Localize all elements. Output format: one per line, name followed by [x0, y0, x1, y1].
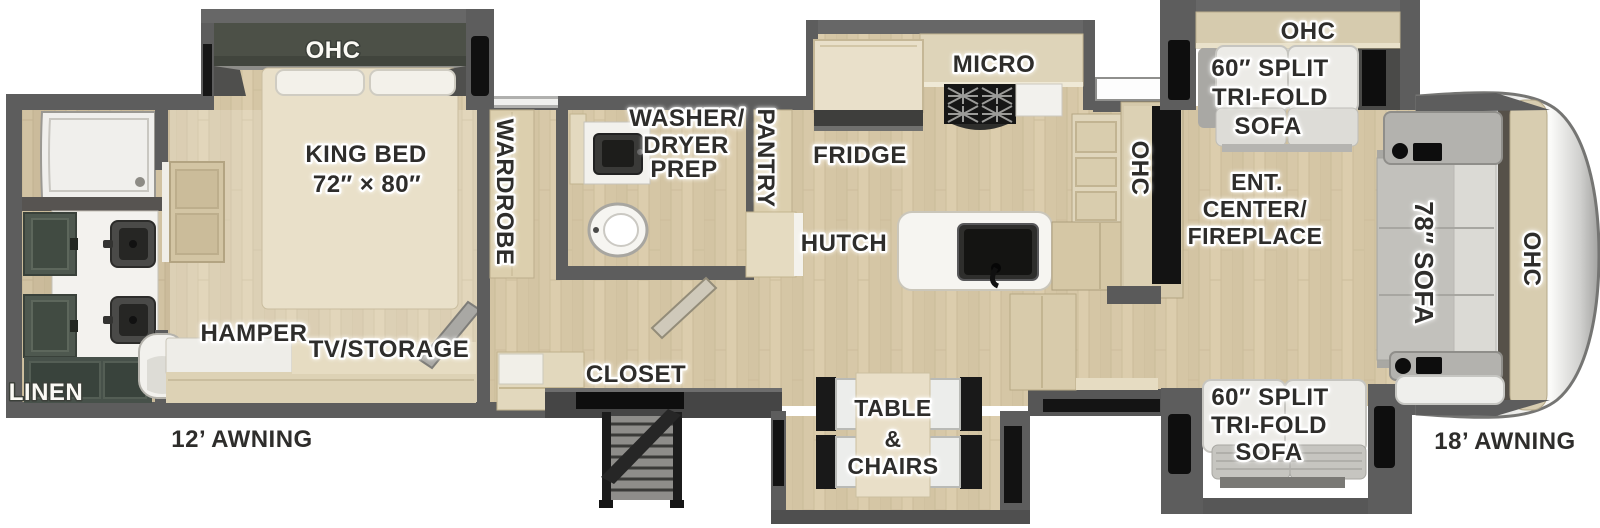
svg-text:TRI-FOLD: TRI-FOLD	[1212, 84, 1328, 111]
svg-text:TV/STORAGE: TV/STORAGE	[309, 336, 470, 363]
svg-text:HAMPER: HAMPER	[200, 320, 307, 347]
svg-text:SOFA: SOFA	[1235, 439, 1302, 466]
svg-text:WASHER/: WASHER/	[629, 105, 745, 132]
svg-text:12’ AWNING: 12’ AWNING	[171, 426, 312, 453]
svg-text:TRI-FOLD: TRI-FOLD	[1211, 412, 1327, 439]
svg-text:78″ SOFA: 78″ SOFA	[1409, 201, 1439, 324]
svg-text:ENT.: ENT.	[1231, 169, 1283, 195]
svg-text:TABLE: TABLE	[854, 395, 931, 421]
svg-text:FRIDGE: FRIDGE	[813, 142, 907, 169]
svg-text:PREP: PREP	[650, 156, 717, 183]
svg-text:18’ AWNING: 18’ AWNING	[1434, 428, 1575, 455]
svg-text:OHC: OHC	[1518, 232, 1545, 287]
svg-text:MICRO: MICRO	[953, 51, 1036, 78]
svg-text:CHAIRS: CHAIRS	[847, 453, 938, 479]
svg-text:FIREPLACE: FIREPLACE	[1188, 223, 1323, 249]
svg-text:&: &	[884, 426, 901, 452]
svg-text:LINEN: LINEN	[9, 379, 84, 406]
svg-text:OHC: OHC	[306, 37, 361, 64]
svg-text:HUTCH: HUTCH	[801, 230, 888, 257]
svg-text:CLOSET: CLOSET	[586, 361, 686, 388]
svg-text:WARDROBE: WARDROBE	[491, 119, 518, 266]
svg-text:SOFA: SOFA	[1234, 113, 1301, 140]
svg-text:OHC: OHC	[1126, 141, 1153, 196]
svg-text:CENTER/: CENTER/	[1203, 196, 1308, 222]
svg-text:DRYER: DRYER	[643, 132, 729, 159]
svg-text:KING BED: KING BED	[305, 141, 426, 168]
svg-text:OHC: OHC	[1281, 18, 1336, 45]
svg-text:60″ SPLIT: 60″ SPLIT	[1211, 55, 1328, 82]
svg-text:PANTRY: PANTRY	[752, 109, 779, 208]
svg-text:60″ SPLIT: 60″ SPLIT	[1211, 384, 1328, 411]
svg-text:72″ × 80″: 72″ × 80″	[313, 171, 421, 198]
